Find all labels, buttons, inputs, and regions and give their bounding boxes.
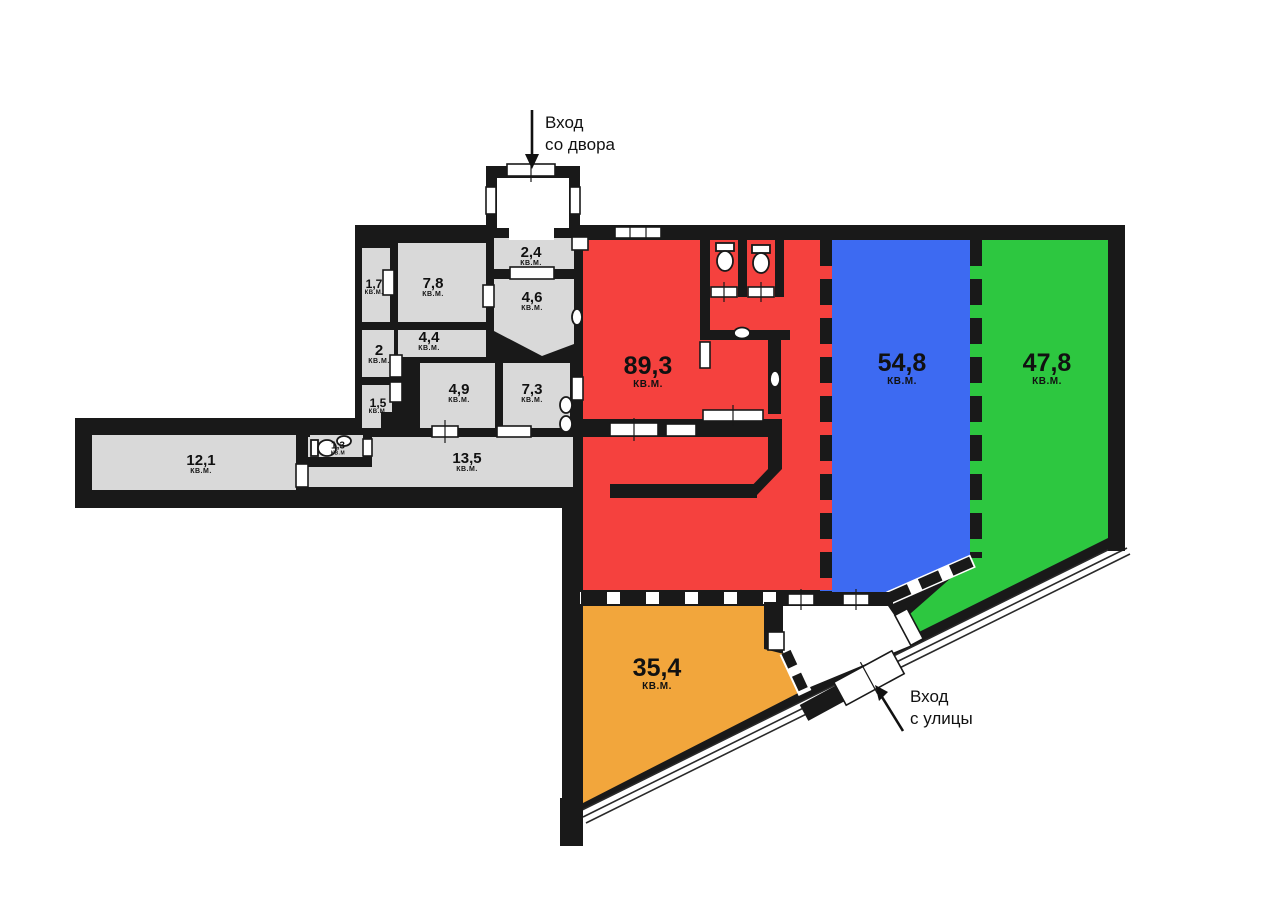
sink-icon [770,371,780,387]
toilet-icon [752,245,770,273]
room-7-8 [398,243,486,322]
floor-plan-page: Вход со двора Вход с улицы 1,7кв.м. 7,8к… [0,0,1280,922]
orange-vestibule-door [768,632,784,650]
courtyard-entrance-line2: со двора [545,134,615,156]
wall-tip [560,798,583,846]
floor-plan-svg [0,0,1280,922]
zones [583,240,1108,803]
street-entrance-label: Вход с улицы [910,686,973,730]
door-red-top-left [572,237,588,250]
sink-icon [560,397,572,413]
window-top-wall [615,227,661,238]
door-red-left [572,377,583,400]
wc-wall-bottom [306,457,370,467]
door-1-7 [383,270,394,295]
street-entrance-line1: Вход [910,686,973,708]
vestibule-window-left [486,187,496,214]
courtyard-entrance-line1: Вход [545,112,615,134]
street-arrow [875,685,903,731]
room-4-4 [398,330,486,357]
corridor-12-1 [92,435,296,490]
room-2-4 [494,238,574,269]
door-wc [363,439,372,456]
toilet-icon [311,440,336,456]
vestibule-window-right [570,187,580,214]
room-4-9 [420,363,495,428]
room-7-3 [503,363,570,428]
vestibule-wall-block [764,602,783,632]
right-wall [1108,225,1125,551]
door-2-4-to-4-6 [510,267,554,279]
wall-pier [381,412,409,430]
door-7-8 [483,285,494,307]
door-1-5 [390,382,402,402]
sink-icon [560,416,572,432]
door-12-1 [296,464,308,487]
courtyard-arrow [525,110,539,169]
sink-icon [337,436,351,446]
sink-icon [734,328,750,339]
door-inner-room [700,342,710,368]
street-entrance-line2: с улицы [910,708,973,730]
toilet-icon [716,243,734,271]
door-inner-left [666,424,696,436]
courtyard-entrance-label: Вход со двора [545,112,615,156]
door-2 [390,355,402,377]
blue-zone [820,240,982,594]
sink-icon [572,309,582,325]
door-7-3 [497,426,531,437]
